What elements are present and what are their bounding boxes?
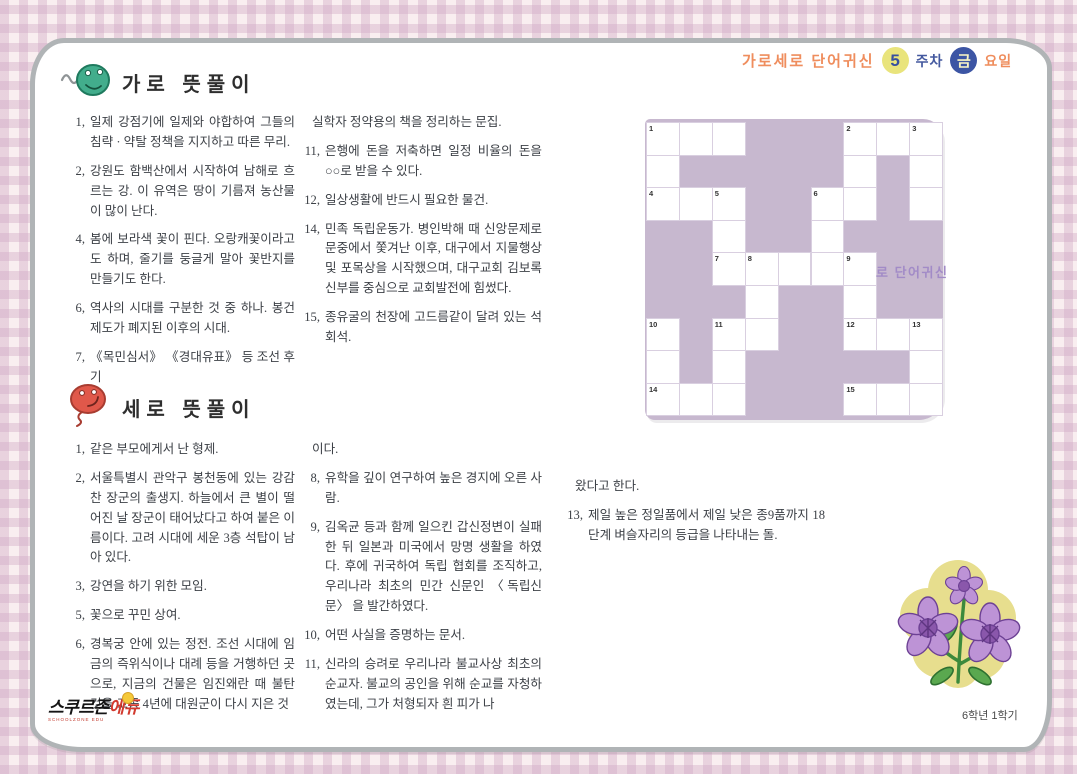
- crossword-cell: [712, 383, 746, 417]
- crossword-cell: [679, 122, 713, 156]
- crossword-cell: 3: [909, 122, 943, 156]
- clue-item: 13,제일 높은 정일품에서 제일 낮은 종9품까지 18단계 벼슬자리의 등급…: [563, 506, 825, 546]
- crossword-cell: [646, 350, 680, 384]
- crossword-cell: 13: [909, 318, 943, 352]
- crossword-cell: [646, 155, 680, 189]
- crossword-cell: [909, 187, 943, 221]
- violet-flower-illustration: [888, 554, 1030, 704]
- across-clues-column-2: 실학자 정약용의 책을 정리하는 문집.11,은행에 돈을 저축하면 일정 비율…: [300, 113, 542, 357]
- down-clues-column-1: 1,같은 부모에게서 난 형제.2,서울특별시 관악구 봉천동에 있는 강감찬 …: [65, 440, 295, 724]
- crossword-cell: 8: [745, 252, 779, 286]
- clue-item: 실학자 정약용의 책을 정리하는 문집.: [300, 113, 542, 133]
- crossword-cell: [712, 122, 746, 156]
- crossword-cell: [745, 285, 779, 319]
- clue-item: 1,같은 부모에게서 난 형제.: [65, 440, 295, 460]
- crossword-cell: [679, 383, 713, 417]
- crossword-cell: 14: [646, 383, 680, 417]
- crossword-cell: [843, 155, 877, 189]
- crossword-cell: [712, 350, 746, 384]
- crossword-cell: [745, 318, 779, 352]
- page-title: 가로세로 단어귀신: [742, 50, 875, 71]
- clue-item: 2,서울특별시 관악구 봉천동에 있는 강감찬 장군의 출생지. 하늘에서 큰 …: [65, 469, 295, 568]
- across-section-header: 가로 뜻풀이: [60, 60, 256, 105]
- red-ghost-icon: [64, 382, 112, 433]
- clue-item: 14,민족 독립운동가. 병인박해 때 신앙문제로 문중에서 쫓겨난 이후, 대…: [300, 220, 542, 300]
- down-clues-column-3: 왔다고 한다.13,제일 높은 정일품에서 제일 낮은 종9품까지 18단계 벼…: [563, 477, 825, 555]
- week-number-badge: 5: [882, 47, 909, 74]
- crossword-cell: 4: [646, 187, 680, 221]
- crossword-cell: [811, 220, 845, 254]
- crossword-cell: 12: [843, 318, 877, 352]
- crossword-cell: [843, 187, 877, 221]
- crossword-cell: [876, 383, 910, 417]
- crossword-cell: 2: [843, 122, 877, 156]
- green-ghost-icon: [60, 60, 112, 105]
- crossword-cell: [909, 155, 943, 189]
- clue-item: 6,역사의 시대를 구분한 것 중 하나. 봉건 제도가 폐지된 이후의 시대.: [65, 299, 295, 339]
- page-header: 가로세로 단어귀신 5 주차 금 요일: [742, 47, 1012, 74]
- grade-semester-label: 6학년 1학기: [962, 707, 1018, 723]
- clue-item: 3,강연을 하기 위한 모임.: [65, 577, 295, 597]
- across-clues-column-1: 1,일제 강점기에 일제와 야합하여 그들의 침략 · 약탈 정책을 지지하고 …: [65, 113, 295, 397]
- clue-item: 이다.: [300, 440, 542, 460]
- chick-icon: [122, 692, 134, 704]
- week-label: 주차: [916, 51, 944, 71]
- clue-item: 4,봄에 보라색 꽃이 핀다. 오랑캐꽃이라고도 하며, 줄기를 둥글게 말아 …: [65, 230, 295, 290]
- clue-item: 9,김옥균 등과 함께 일으킨 갑신정변이 실패한 뒤 일본과 미국에서 망명 …: [300, 518, 542, 617]
- clue-item: 11,신라의 승려로 우리나라 불교사상 최초의 순교자. 불교의 공인을 위해…: [300, 655, 542, 715]
- clue-item: 1,일제 강점기에 일제와 야합하여 그들의 침략 · 약탈 정책을 지지하고 …: [65, 113, 295, 153]
- clue-item: 12,일상생활에 반드시 필요한 물건.: [300, 191, 542, 211]
- crossword-cell: 5: [712, 187, 746, 221]
- crossword-cell: [778, 252, 812, 286]
- schoolzone-edu-logo: 스쿠르존에듀 SCHOOLZONE EDU: [48, 699, 139, 723]
- down-section-header: 세로 뜻풀이: [64, 382, 256, 433]
- down-title: 세로 뜻풀이: [122, 393, 256, 422]
- clue-item: 10,어떤 사실을 증명하는 문서.: [300, 626, 542, 646]
- crossword-cell: [909, 383, 943, 417]
- crossword-cell: 1: [646, 122, 680, 156]
- crossword-cell: [811, 252, 845, 286]
- clue-item: 5,꽃으로 꾸민 상여.: [65, 606, 295, 626]
- grid-watermark: 로 단어귀신: [876, 262, 948, 281]
- down-clues-column-2: 이다.8,유학을 깊이 연구하여 높은 경지에 오른 사람.9,김옥균 등과 함…: [300, 440, 542, 724]
- clue-item: 왔다고 한다.: [563, 477, 825, 497]
- crossword-cell: [679, 187, 713, 221]
- crossword-cell: 6: [811, 187, 845, 221]
- crossword-cell: 7: [712, 252, 746, 286]
- day-badge: 금: [950, 47, 977, 74]
- crossword-cell: 10: [646, 318, 680, 352]
- crossword-cell: [876, 122, 910, 156]
- crossword-cell: [909, 350, 943, 384]
- clue-item: 8,유학을 깊이 연구하여 높은 경지에 오른 사람.: [300, 469, 542, 509]
- clue-item: 15,종유굴의 천장에 고드름같이 달려 있는 석회석.: [300, 308, 542, 348]
- logo-subtext: SCHOOLZONE EDU: [48, 718, 139, 723]
- clue-item: 11,은행에 돈을 저축하면 일정 비율의 돈을 ○○로 받을 수 있다.: [300, 142, 542, 182]
- crossword-cell: [876, 318, 910, 352]
- crossword-cell: 11: [712, 318, 746, 352]
- crossword-cell: [712, 220, 746, 254]
- crossword-cell: 15: [843, 383, 877, 417]
- crossword-cell: 9: [843, 252, 877, 286]
- crossword-cell: [843, 285, 877, 319]
- day-label: 요일: [984, 51, 1012, 71]
- clue-item: 2,강원도 함백산에서 시작하여 남해로 흐르는 강. 이 유역은 땅이 기름져…: [65, 162, 295, 222]
- across-title: 가로 뜻풀이: [122, 68, 256, 97]
